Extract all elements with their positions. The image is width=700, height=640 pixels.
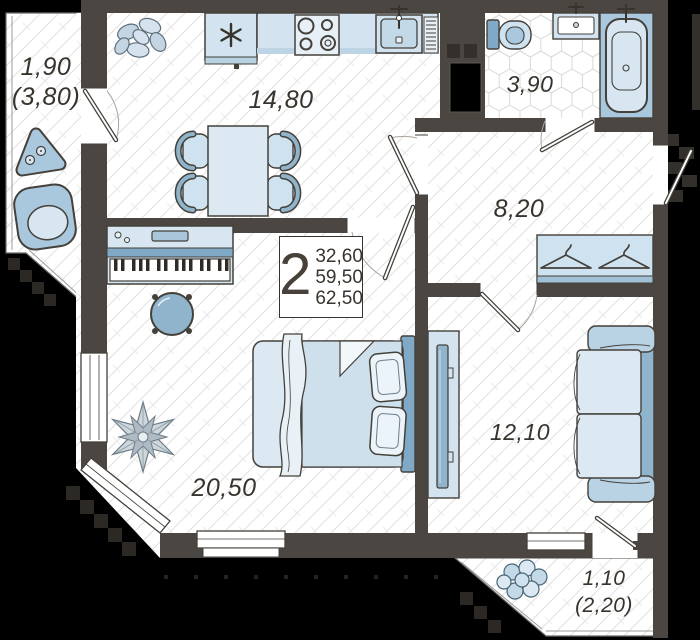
room-area-label-hallway: 8,20 (477, 195, 561, 224)
dining-table (208, 126, 268, 216)
sofa-cushion (577, 350, 641, 414)
sofa-armrest (588, 326, 655, 352)
apartment-info-box: 2 32,60 59,50 62,50 (279, 236, 363, 318)
living-room-bottom-window (197, 531, 285, 548)
balcony-armchair (12, 182, 78, 251)
dish-rack (424, 17, 438, 53)
toilet (487, 20, 531, 49)
room-area-label-bedroom: 12,10 (470, 419, 570, 446)
area-line-2: 59,50 (315, 267, 363, 288)
wardrobe (537, 235, 653, 283)
room-area-label-living-room: 20,50 (172, 474, 276, 503)
area-value-alt: (2,20) (552, 592, 656, 619)
living-room-side-window (81, 353, 107, 442)
rooms-count: 2 (279, 239, 311, 311)
living-room-window-sill (203, 548, 279, 557)
room-area-label-balcony-top-left: 1,90 (3,80) (4, 52, 88, 112)
pillow (369, 406, 406, 456)
area-line-3: 62,50 (315, 288, 363, 309)
bed (253, 334, 415, 476)
room-area-label-balcony-bottom-right: 1,10 (2,20) (552, 565, 656, 619)
sofa (574, 326, 655, 502)
area-value-alt: (3,80) (4, 82, 88, 112)
area-value: 1,90 (4, 52, 88, 82)
pillow (369, 352, 407, 403)
room-area-label-kitchen: 14,80 (231, 86, 331, 115)
tv-screen (437, 345, 448, 488)
area-summary: 32,60 59,50 62,50 (315, 246, 363, 309)
tv-unit (428, 331, 459, 498)
floor-plan-drawing (0, 0, 700, 640)
ventilation-shaft (450, 63, 481, 112)
sofa-cushion (577, 414, 641, 478)
sofa-armrest (588, 476, 655, 502)
piano-stool (151, 293, 193, 335)
piano (107, 226, 233, 284)
room-area-label-bathroom: 3,90 (490, 71, 570, 98)
area-line-1: 32,60 (315, 246, 363, 267)
bedroom-window (527, 533, 585, 550)
bathtub (600, 5, 653, 118)
floor-plan: 1,90 (3,80) 14,80 3,90 8,20 20,50 12,10 … (0, 0, 700, 640)
area-value: 1,10 (552, 565, 656, 592)
